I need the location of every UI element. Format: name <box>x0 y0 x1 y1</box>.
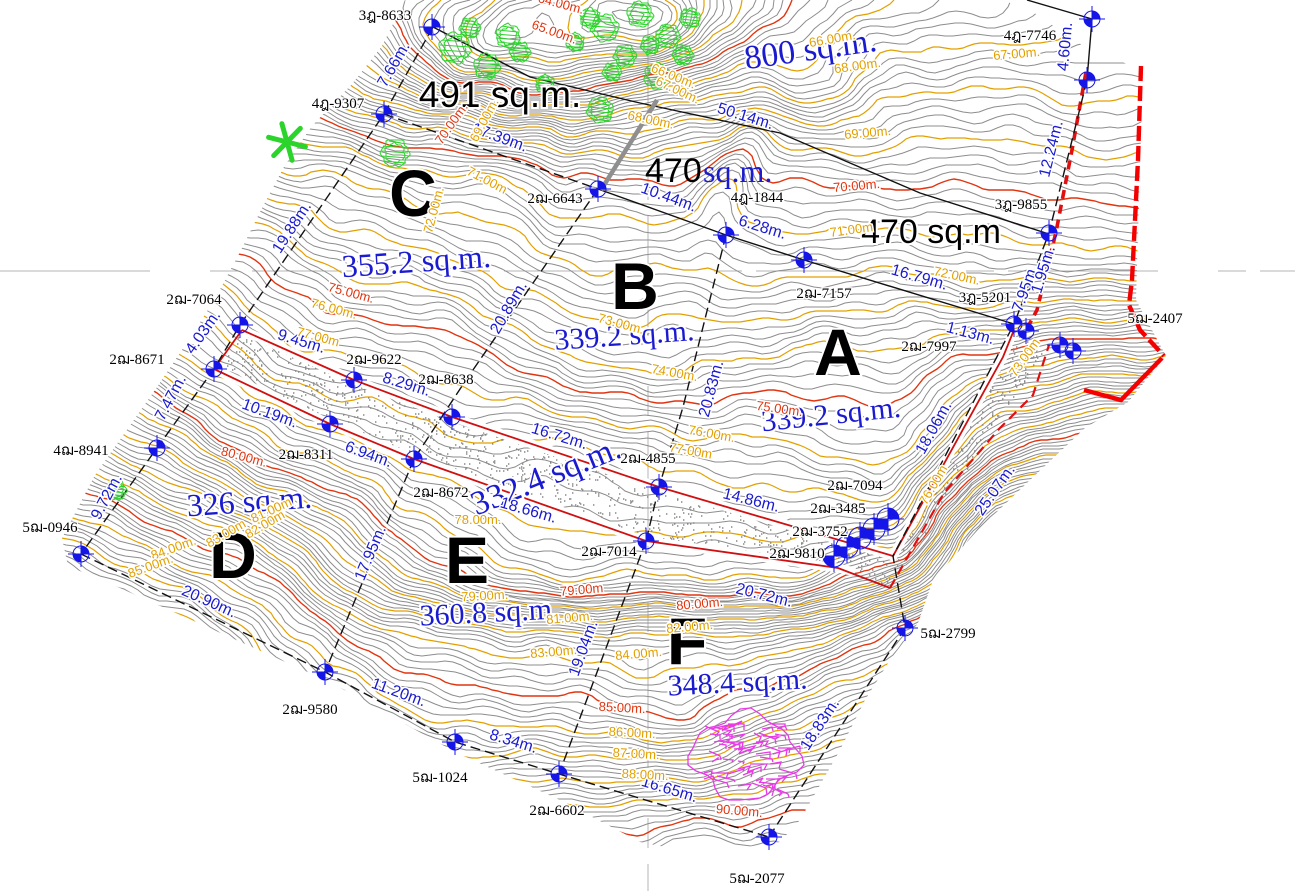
svg-text:86.00m.: 86.00m. <box>608 724 656 741</box>
svg-text:2ฌ-7094: 2ฌ-7094 <box>827 478 883 494</box>
svg-text:5ฌ-1024: 5ฌ-1024 <box>412 770 468 786</box>
svg-text:2ฌ-6602: 2ฌ-6602 <box>529 803 584 819</box>
svg-text:2ฌ-7997: 2ฌ-7997 <box>901 339 957 355</box>
svg-text:2ฌ-9622: 2ฌ-9622 <box>346 352 401 368</box>
svg-text:2ฌ-3752: 2ฌ-3752 <box>792 524 847 540</box>
svg-text:3ฎ-5201: 3ฎ-5201 <box>959 290 1012 306</box>
svg-text:85.00m.: 85.00m. <box>598 699 646 716</box>
svg-text:5ฌ-2077: 5ฌ-2077 <box>729 871 785 887</box>
svg-text:3ฎ-9855: 3ฎ-9855 <box>995 197 1048 213</box>
svg-text:4ฎ-7746: 4ฎ-7746 <box>1004 28 1057 44</box>
svg-text:sq.m.: sq.m. <box>703 153 772 189</box>
svg-text:79.00m.: 79.00m. <box>461 587 509 604</box>
svg-text:4ฌ-8941: 4ฌ-8941 <box>53 443 108 459</box>
svg-text:470 sq.m: 470 sq.m <box>861 213 1001 251</box>
svg-text:2ฌ-9580: 2ฌ-9580 <box>282 702 337 718</box>
svg-text:78.00m.: 78.00m. <box>455 512 502 527</box>
svg-text:2ฌ-7157: 2ฌ-7157 <box>796 286 852 302</box>
svg-text:2ฌ-6643: 2ฌ-6643 <box>527 191 582 207</box>
svg-text:4ฎ-9307: 4ฎ-9307 <box>312 96 365 112</box>
svg-text:2ฌ-3485: 2ฌ-3485 <box>810 501 865 517</box>
svg-text:2ฌ-8311: 2ฌ-8311 <box>279 447 334 463</box>
svg-text:2ฌ-8672: 2ฌ-8672 <box>413 485 468 501</box>
svg-text:88.00m.: 88.00m. <box>621 766 669 783</box>
svg-text:2ฌ-9810: 2ฌ-9810 <box>769 546 824 562</box>
svg-text:2ฌ-7014: 2ฌ-7014 <box>581 544 637 560</box>
svg-text:A: A <box>814 315 862 389</box>
svg-text:E: E <box>445 523 489 597</box>
svg-text:4ฎ-1844: 4ฎ-1844 <box>731 190 784 206</box>
svg-text:F: F <box>667 604 707 678</box>
svg-text:5ฌ-2799: 5ฌ-2799 <box>920 626 975 642</box>
svg-text:B: B <box>611 249 659 323</box>
svg-text:491 sq.m.: 491 sq.m. <box>419 74 581 115</box>
svg-text:87.00m.: 87.00m. <box>612 745 660 762</box>
svg-text:3ฎ-8633: 3ฎ-8633 <box>359 8 412 24</box>
svg-text:5ฌ-0946: 5ฌ-0946 <box>22 520 78 536</box>
svg-text:2ฌ-7064: 2ฌ-7064 <box>166 292 222 308</box>
svg-text:2ฌ-8671: 2ฌ-8671 <box>109 352 164 368</box>
svg-text:2ฌ-8638: 2ฌ-8638 <box>418 372 473 388</box>
svg-text:5ฌ-2407: 5ฌ-2407 <box>1127 311 1183 327</box>
